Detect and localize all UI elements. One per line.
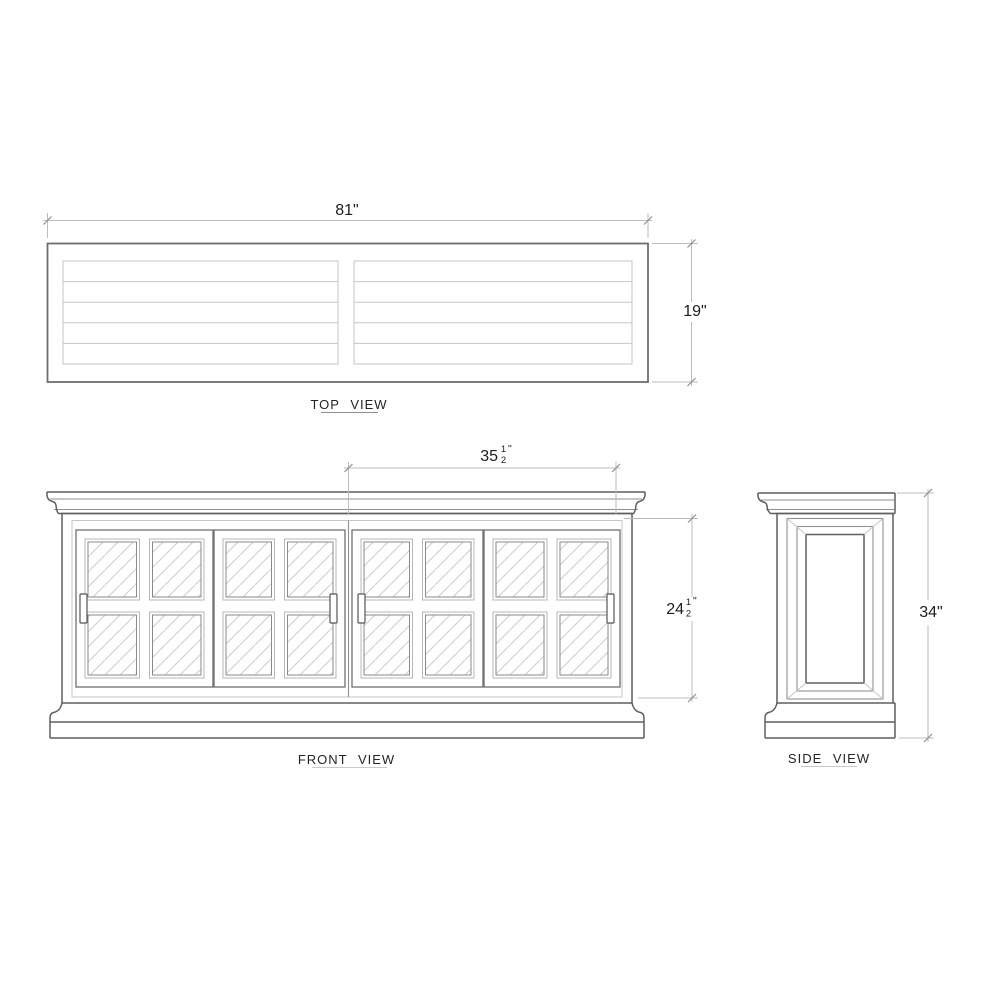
glass-pane — [153, 615, 202, 675]
crown-ogee-left — [47, 492, 58, 514]
glass-pane — [560, 542, 608, 597]
technical-drawing-page: 81" 19" TOP VIEW — [0, 0, 1000, 1000]
glass-pane — [288, 615, 334, 675]
glass-pane — [226, 615, 272, 675]
base-ogee-right — [632, 703, 644, 722]
dim-text-top-depth: 19" — [683, 303, 706, 320]
furniture-dimension-drawing: 81" 19" TOP VIEW — [0, 0, 1000, 1000]
dim-text-front-width-unit: " — [508, 443, 512, 455]
top-view: 81" 19" TOP VIEW — [43, 202, 707, 413]
glass-pane — [426, 542, 472, 597]
door-handle-3 — [358, 594, 365, 623]
dimension-width-81: 81" — [43, 202, 652, 238]
glass-pane — [153, 542, 202, 597]
crown-ogee-right — [634, 492, 645, 514]
extension-line — [349, 462, 617, 514]
crown-ogee-left — [758, 493, 770, 514]
dim-text-front-width-den: 2 — [501, 455, 506, 466]
front-view-label: FRONT VIEW — [298, 752, 395, 767]
sliding-door-2 — [214, 530, 345, 687]
door-handle-1 — [80, 594, 87, 623]
glass-pane — [496, 542, 544, 597]
dimension-depth-19: 19" — [652, 239, 707, 386]
glass-pane — [364, 542, 410, 597]
front-base-molding — [50, 703, 644, 738]
side-body-outline — [777, 514, 893, 704]
glass-pane — [226, 542, 272, 597]
side-recessed-panel — [787, 519, 883, 700]
glass-pane — [364, 615, 410, 675]
dimension-door-height-24-5: 24 1 2 " — [624, 514, 698, 702]
dim-text-front-width-whole: 35 — [480, 448, 498, 465]
front-crown-molding — [47, 492, 645, 514]
side-view: 34" SIDE VIEW — [758, 489, 943, 767]
glass-pane — [560, 615, 608, 675]
dim-text-door-height-unit: " — [693, 595, 697, 607]
door-handle-4 — [607, 594, 614, 623]
dimension-height-34: 34" — [897, 489, 943, 742]
side-crown-molding — [758, 493, 895, 514]
dimension-half-width-35-5: 35 1 2 " — [344, 443, 620, 514]
glass-pane — [88, 615, 137, 675]
glass-pane — [288, 542, 334, 597]
sliding-door-3 — [352, 530, 483, 687]
front-view: 35 1 2 " 24 1 2 " FRONT VIEW — [47, 443, 698, 768]
panel-bevel-corners — [787, 519, 883, 700]
base-ogee-left — [50, 703, 62, 722]
glass-pane — [426, 615, 472, 675]
dim-text-front-width-num: 1 — [501, 444, 506, 455]
dim-text-top-width: 81" — [335, 202, 358, 219]
dim-text-side-height: 34" — [919, 604, 942, 621]
dim-text-door-height-den: 2 — [686, 609, 691, 620]
glass-pane — [88, 542, 137, 597]
sliding-door-1 — [76, 530, 213, 687]
top-view-outline — [48, 244, 649, 383]
sliding-door-4 — [484, 530, 620, 687]
top-view-label: TOP VIEW — [310, 397, 387, 412]
dim-text-door-height-num: 1 — [686, 597, 691, 608]
base-ogee-left — [765, 703, 777, 722]
side-view-label: SIDE VIEW — [788, 751, 870, 766]
door-handle-2 — [330, 594, 337, 623]
glass-pane — [496, 615, 544, 675]
side-base-molding — [765, 703, 895, 738]
dim-text-door-height-whole: 24 — [666, 601, 684, 618]
